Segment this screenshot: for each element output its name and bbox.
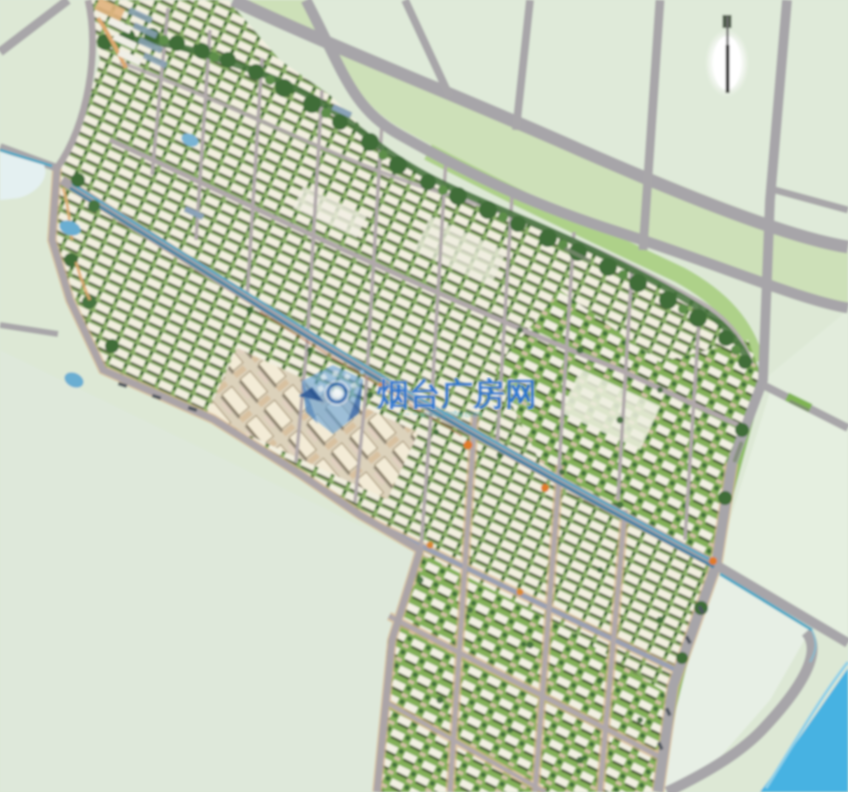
svg-text:~ ~ ~ www.ytgfw.com: ~ ~ ~ www.ytgfw.com (397, 409, 482, 419)
